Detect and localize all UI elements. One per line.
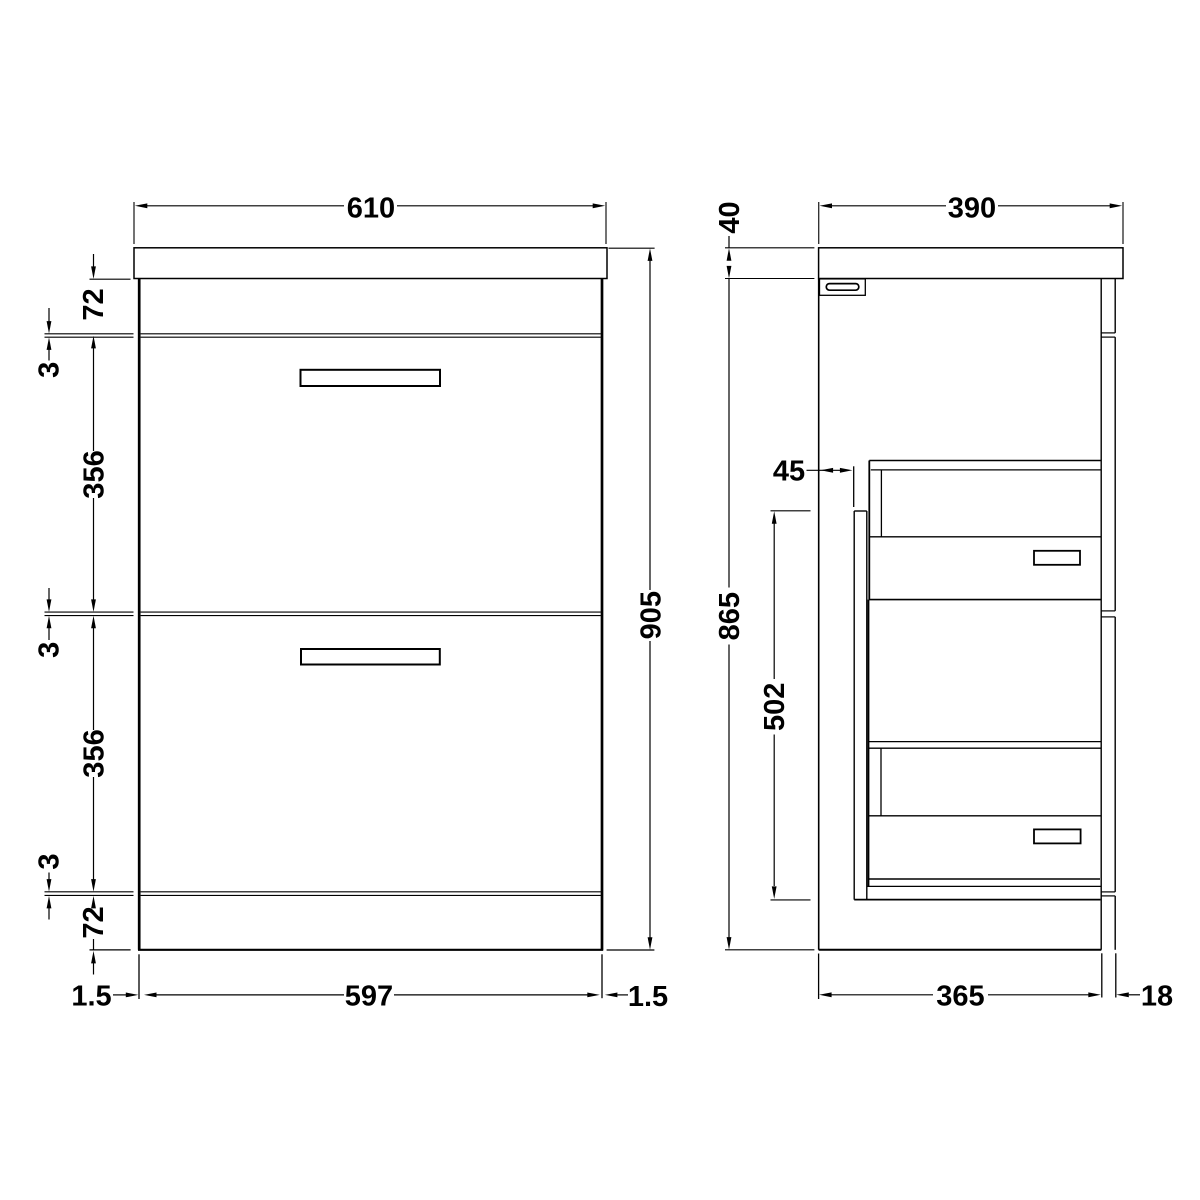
svg-text:356: 356 — [79, 450, 111, 498]
svg-text:905: 905 — [636, 591, 668, 639]
svg-text:3: 3 — [34, 853, 66, 869]
svg-text:40: 40 — [714, 201, 746, 233]
svg-text:865: 865 — [714, 592, 746, 640]
svg-text:3: 3 — [34, 362, 66, 378]
svg-text:502: 502 — [759, 683, 791, 731]
svg-text:1.5: 1.5 — [71, 981, 111, 1013]
svg-text:390: 390 — [948, 192, 996, 224]
svg-text:597: 597 — [345, 980, 393, 1012]
svg-text:3: 3 — [34, 642, 66, 658]
svg-text:610: 610 — [347, 192, 395, 224]
svg-text:365: 365 — [936, 980, 984, 1012]
svg-text:45: 45 — [773, 456, 805, 488]
svg-text:18: 18 — [1141, 980, 1173, 1012]
svg-text:356: 356 — [79, 729, 111, 777]
svg-text:1.5: 1.5 — [628, 981, 668, 1013]
svg-text:72: 72 — [78, 906, 110, 938]
svg-text:72: 72 — [78, 288, 110, 320]
